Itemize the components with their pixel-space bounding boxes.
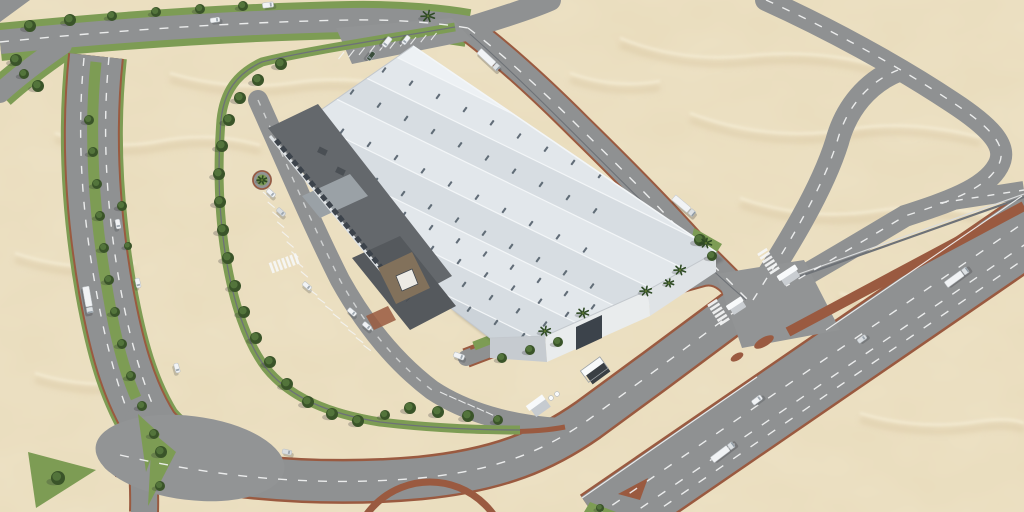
aerial-render bbox=[0, 0, 1024, 512]
tank-2 bbox=[555, 392, 560, 397]
tank bbox=[549, 396, 554, 401]
aerial-render-stage bbox=[0, 0, 1024, 512]
